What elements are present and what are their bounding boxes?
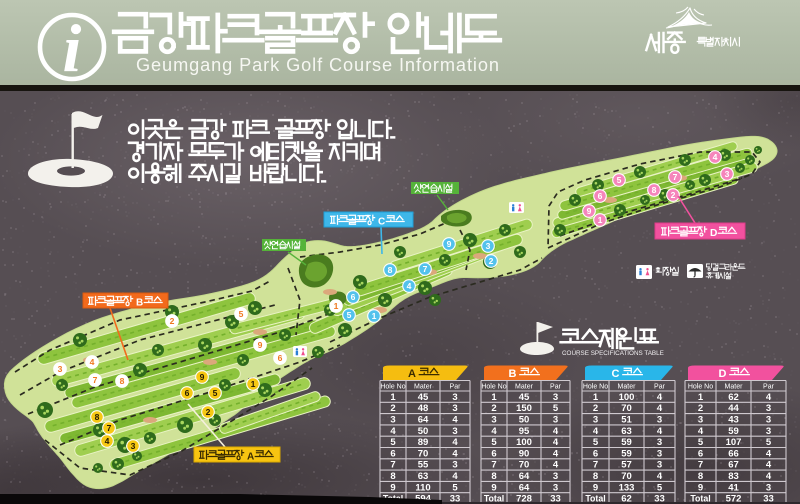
svg-text:Hole No: Hole No: [481, 384, 506, 391]
svg-text:4: 4: [90, 357, 95, 367]
svg-text:6: 6: [278, 353, 283, 363]
svg-text:3: 3: [766, 415, 771, 426]
svg-text:4: 4: [390, 426, 396, 437]
svg-text:7: 7: [107, 423, 112, 433]
svg-text:8: 8: [698, 471, 703, 482]
svg-text:1: 1: [251, 379, 256, 389]
svg-text:Geumgang Park Golf Course Info: Geumgang Park Golf Course Information: [136, 55, 500, 75]
svg-text:B: B: [509, 368, 517, 380]
svg-text:9: 9: [390, 482, 395, 493]
svg-text:9: 9: [447, 239, 452, 249]
svg-text:3: 3: [553, 392, 558, 403]
svg-text:3: 3: [390, 415, 395, 426]
svg-text:7: 7: [673, 172, 678, 182]
svg-text:45: 45: [418, 392, 429, 403]
svg-text:3: 3: [491, 415, 496, 426]
svg-text:8: 8: [95, 412, 100, 422]
svg-text:90: 90: [519, 448, 530, 459]
svg-text:3: 3: [452, 392, 457, 403]
svg-text:COURSE SPECIFICATIONS TABLE: COURSE SPECIFICATIONS TABLE: [562, 350, 664, 357]
svg-text:Par: Par: [654, 384, 666, 391]
svg-text:1: 1: [334, 301, 339, 311]
svg-text:1: 1: [698, 392, 704, 403]
svg-text:64: 64: [418, 415, 429, 426]
svg-text:B: B: [136, 298, 143, 309]
svg-text:2: 2: [489, 256, 494, 266]
svg-text:100: 100: [619, 392, 635, 403]
svg-text:3: 3: [486, 241, 491, 251]
svg-text:4: 4: [452, 448, 458, 459]
svg-text:Par: Par: [550, 384, 562, 391]
svg-text:8: 8: [652, 185, 657, 195]
svg-text:3: 3: [452, 426, 457, 437]
svg-text:1: 1: [491, 392, 497, 403]
svg-text:59: 59: [621, 437, 632, 448]
svg-text:9: 9: [593, 482, 598, 493]
svg-text:4: 4: [766, 392, 772, 403]
svg-text:150: 150: [516, 403, 532, 414]
svg-text:3: 3: [657, 437, 662, 448]
svg-text:6: 6: [491, 448, 496, 459]
svg-text:2: 2: [698, 403, 703, 414]
svg-text:6: 6: [390, 448, 395, 459]
svg-text:4: 4: [713, 152, 718, 162]
svg-text:100: 100: [516, 437, 532, 448]
svg-text:2: 2: [390, 403, 395, 414]
svg-text:Mater: Mater: [515, 384, 534, 391]
svg-text:C: C: [378, 217, 385, 228]
svg-text:C: C: [612, 368, 620, 380]
svg-text:7: 7: [491, 460, 496, 471]
svg-text:4: 4: [766, 448, 772, 459]
svg-text:2: 2: [206, 407, 211, 417]
svg-text:i: i: [63, 10, 82, 86]
svg-text:3: 3: [657, 415, 662, 426]
svg-text:110: 110: [415, 482, 430, 493]
svg-text:7: 7: [593, 460, 598, 471]
svg-text:89: 89: [418, 437, 429, 448]
svg-text:5: 5: [657, 482, 663, 493]
svg-text:5: 5: [553, 403, 559, 414]
svg-text:Par: Par: [763, 384, 775, 391]
svg-text:4: 4: [553, 460, 559, 471]
svg-text:41: 41: [728, 482, 739, 493]
svg-text:9: 9: [698, 482, 703, 493]
svg-text:4: 4: [553, 437, 559, 448]
svg-text:67: 67: [728, 460, 739, 471]
svg-text:62: 62: [728, 392, 739, 403]
svg-text:7: 7: [390, 460, 395, 471]
svg-text:5: 5: [698, 437, 704, 448]
svg-text:Mater: Mater: [414, 384, 433, 391]
svg-text:59: 59: [621, 448, 632, 459]
svg-text:44: 44: [728, 403, 739, 414]
svg-text:66: 66: [728, 448, 739, 459]
svg-text:4: 4: [407, 281, 412, 291]
svg-text:D: D: [719, 368, 727, 380]
svg-text:45: 45: [519, 392, 530, 403]
svg-text:3: 3: [553, 471, 558, 482]
svg-text:5: 5: [390, 437, 396, 448]
svg-text:4: 4: [766, 460, 772, 471]
svg-text:8: 8: [390, 471, 395, 482]
svg-text:5: 5: [239, 309, 244, 319]
svg-text:7: 7: [93, 375, 98, 385]
svg-text:4: 4: [657, 403, 663, 414]
svg-text:3: 3: [657, 460, 662, 471]
svg-text:63: 63: [418, 471, 429, 482]
svg-text:70: 70: [519, 460, 530, 471]
svg-text:50: 50: [418, 426, 429, 437]
svg-text:8: 8: [388, 265, 393, 275]
svg-text:2: 2: [671, 190, 676, 200]
svg-text:3: 3: [131, 441, 136, 451]
svg-text:4: 4: [105, 436, 110, 446]
svg-text:1: 1: [390, 392, 396, 403]
svg-text:Mater: Mater: [618, 384, 637, 391]
svg-text:6: 6: [698, 448, 703, 459]
svg-text:64: 64: [519, 482, 530, 493]
svg-text:3: 3: [766, 403, 771, 414]
svg-text:9: 9: [200, 372, 205, 382]
svg-text:Mater: Mater: [725, 384, 744, 391]
svg-text:Hole No: Hole No: [380, 384, 405, 391]
svg-text:4: 4: [452, 471, 458, 482]
svg-text:A: A: [247, 452, 254, 463]
svg-text:70: 70: [621, 403, 632, 414]
svg-text:70: 70: [418, 448, 429, 459]
svg-text:9: 9: [258, 340, 263, 350]
svg-text:107: 107: [726, 437, 742, 448]
svg-text:4: 4: [491, 426, 497, 437]
svg-text:7: 7: [698, 460, 703, 471]
svg-text:83: 83: [728, 471, 739, 482]
svg-text:1: 1: [593, 392, 599, 403]
svg-text:55: 55: [418, 460, 429, 471]
svg-text:4: 4: [452, 415, 458, 426]
svg-text:Par: Par: [450, 384, 462, 391]
svg-text:59: 59: [728, 426, 739, 437]
svg-text:43: 43: [728, 415, 739, 426]
svg-text:4: 4: [553, 448, 559, 459]
svg-text:6: 6: [351, 292, 356, 302]
svg-text:A: A: [408, 368, 416, 380]
svg-text:2: 2: [593, 403, 598, 414]
svg-text:7: 7: [423, 264, 428, 274]
svg-text:8: 8: [491, 471, 496, 482]
svg-text:1: 1: [372, 311, 377, 321]
svg-text:Hole No: Hole No: [688, 384, 713, 391]
svg-text:6: 6: [598, 191, 603, 201]
svg-text:4: 4: [553, 426, 559, 437]
svg-text:5: 5: [593, 437, 599, 448]
svg-text:64: 64: [519, 471, 530, 482]
svg-text:133: 133: [619, 482, 635, 493]
svg-text:3: 3: [657, 448, 662, 459]
svg-text:3: 3: [452, 460, 457, 471]
svg-text:3: 3: [725, 169, 730, 179]
svg-text:3: 3: [698, 415, 703, 426]
svg-text:3: 3: [553, 482, 558, 493]
svg-text:4: 4: [657, 392, 663, 403]
svg-text:95: 95: [519, 426, 530, 437]
svg-text:4: 4: [657, 426, 663, 437]
svg-text:2: 2: [170, 316, 175, 326]
svg-text:3: 3: [593, 415, 598, 426]
svg-text:1: 1: [598, 215, 603, 225]
svg-text:5: 5: [452, 482, 458, 493]
svg-text:3: 3: [58, 364, 63, 374]
svg-text:3: 3: [766, 426, 771, 437]
svg-text:51: 51: [621, 415, 632, 426]
svg-text:4: 4: [452, 437, 458, 448]
svg-text:5: 5: [347, 310, 352, 320]
svg-text:4: 4: [698, 426, 704, 437]
svg-text:2: 2: [491, 403, 496, 414]
svg-text:3: 3: [452, 403, 457, 414]
svg-text:5: 5: [766, 437, 772, 448]
svg-text:Hole No: Hole No: [583, 384, 608, 391]
svg-text:9: 9: [587, 206, 592, 216]
svg-text:5: 5: [491, 437, 497, 448]
svg-text:D: D: [710, 228, 717, 239]
svg-text:6: 6: [593, 448, 598, 459]
svg-text:4: 4: [593, 426, 599, 437]
svg-text:50: 50: [519, 415, 530, 426]
svg-text:9: 9: [491, 482, 496, 493]
svg-text:5: 5: [213, 388, 218, 398]
svg-text:8: 8: [120, 376, 125, 386]
svg-text:70: 70: [621, 471, 632, 482]
svg-text:4: 4: [766, 471, 772, 482]
svg-text:57: 57: [621, 460, 632, 471]
svg-text:8: 8: [593, 471, 598, 482]
svg-text:3: 3: [553, 415, 558, 426]
svg-text:5: 5: [617, 175, 622, 185]
svg-text:3: 3: [766, 482, 771, 493]
svg-text:6: 6: [185, 388, 190, 398]
svg-text:48: 48: [418, 403, 429, 414]
svg-text:63: 63: [621, 426, 632, 437]
svg-text:4: 4: [657, 471, 663, 482]
